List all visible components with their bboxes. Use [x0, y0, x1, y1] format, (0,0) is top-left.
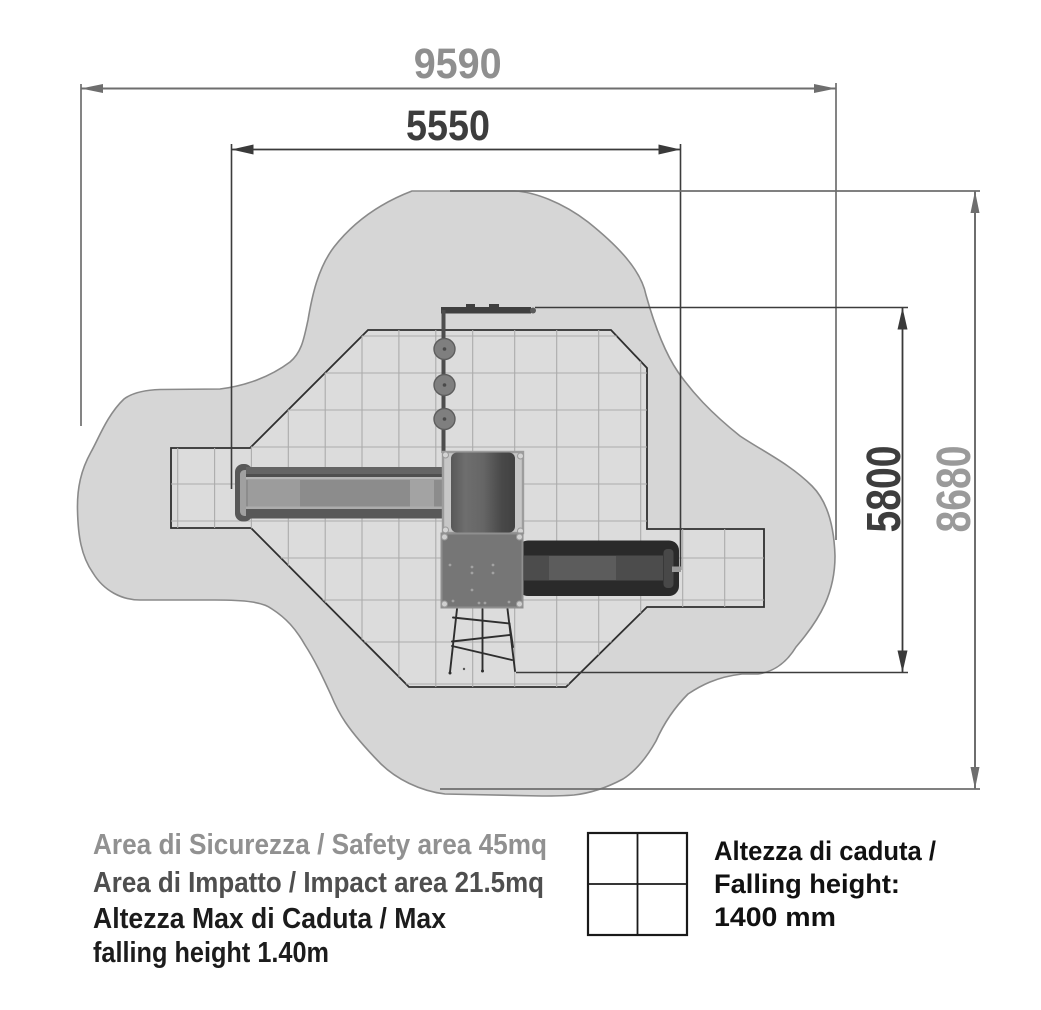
svg-text:Area di Sicurezza / Safety are: Area di Sicurezza / Safety area 45mq: [93, 829, 547, 861]
svg-text:9590: 9590: [414, 40, 502, 88]
svg-text:1400 mm: 1400 mm: [714, 902, 836, 932]
svg-text:5800: 5800: [858, 446, 911, 533]
svg-text:8680: 8680: [928, 446, 981, 533]
svg-text:Area di Impatto / Impact area: Area di Impatto / Impact area 21.5mq: [93, 867, 544, 899]
svg-text:Altezza Max di Caduta / Max: Altezza Max di Caduta / Max: [93, 903, 446, 935]
svg-text:5550: 5550: [406, 102, 490, 150]
svg-text:falling height 1.40m: falling height 1.40m: [93, 937, 329, 969]
svg-text:Falling height:: Falling height:: [714, 869, 900, 899]
svg-text:Altezza di caduta /: Altezza di caduta /: [714, 836, 936, 866]
